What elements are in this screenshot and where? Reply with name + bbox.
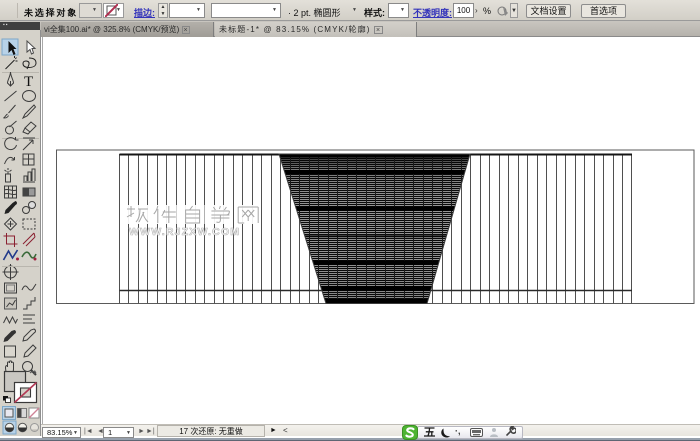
svg-text:WWW.RJZXW.COM: WWW.RJZXW.COM: [129, 226, 240, 238]
svg-text:T: T: [24, 74, 33, 90]
